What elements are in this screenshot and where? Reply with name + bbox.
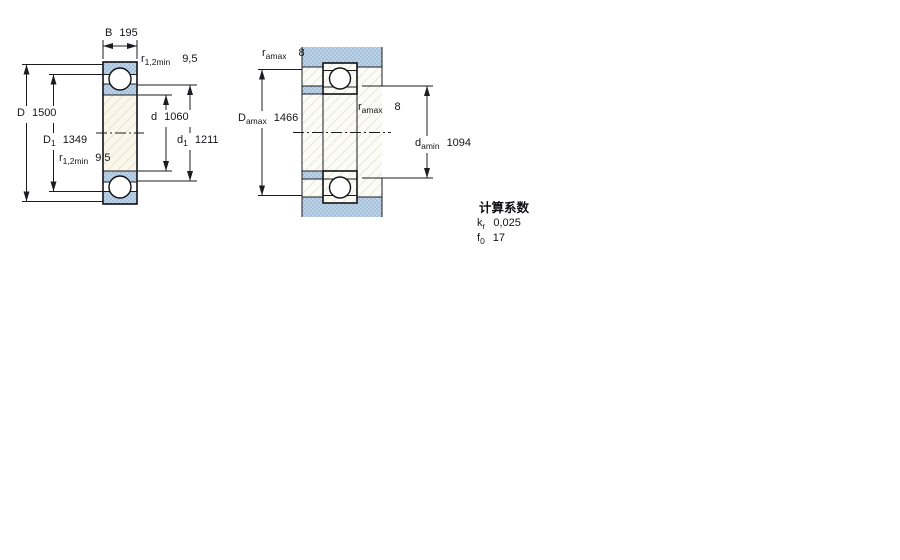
dim-subscript: 1,2min bbox=[145, 57, 171, 67]
dim-label-B: B195 bbox=[105, 26, 138, 43]
factor-value: 0,025 bbox=[493, 217, 521, 229]
dim-label-ramax-top: ramax8 bbox=[262, 46, 305, 63]
ball-bottom bbox=[330, 177, 351, 198]
calc-factor-f0: f017 bbox=[477, 232, 505, 246]
dim-label-d: d1060 bbox=[149, 110, 191, 127]
calc-factor-kr: kr0,025 bbox=[477, 217, 521, 231]
dim-value: 195 bbox=[119, 27, 137, 39]
shaft-shoulder-bottom bbox=[302, 171, 323, 179]
dim-value: 8 bbox=[298, 47, 304, 59]
dim-value: 1060 bbox=[164, 111, 188, 123]
mounted-bearing-top bbox=[323, 63, 357, 94]
dim-value: 9,5 bbox=[95, 152, 110, 164]
dim-subscript: amax bbox=[266, 51, 287, 61]
dim-symbol: B bbox=[105, 27, 112, 39]
dim-symbol: D bbox=[238, 112, 246, 124]
ball-top bbox=[330, 68, 351, 89]
dim-value: 1500 bbox=[32, 107, 56, 119]
dim-symbol: D bbox=[43, 134, 51, 146]
dim-label-ramax-right: ramax8 bbox=[358, 100, 401, 117]
calc-factors-title: 计算系数 bbox=[479, 197, 529, 216]
dim-label-r12min-bottom: r1,2min9,5 bbox=[59, 151, 110, 168]
dim-value: 1211 bbox=[195, 134, 219, 146]
dim-label-d1: d11211 bbox=[175, 133, 221, 150]
dim-value: 1466 bbox=[274, 112, 298, 124]
dim-symbol: d bbox=[151, 111, 157, 123]
factor-value: 17 bbox=[493, 232, 505, 244]
dim-label-Damax: Damax1466 bbox=[236, 111, 300, 128]
dim-label-D: D1500 bbox=[15, 106, 58, 123]
dim-label-D1: D11349 bbox=[41, 133, 89, 150]
technical-drawing-page: B195 r1,2min9,5 D1500 D11349 r1,2min9,5 … bbox=[0, 0, 900, 560]
dim-subscript: 1 bbox=[183, 138, 188, 148]
dim-value: 9,5 bbox=[182, 53, 197, 65]
shaft-shoulder-top bbox=[302, 86, 323, 94]
mounted-bearing-bottom bbox=[323, 171, 357, 203]
factor-subscript: 0 bbox=[480, 236, 485, 246]
dim-subscript: amax bbox=[246, 116, 267, 126]
mounting-figure bbox=[258, 47, 433, 217]
technical-drawing-canvas bbox=[0, 0, 900, 560]
dim-symbol: D bbox=[17, 107, 25, 119]
dim-value: 1094 bbox=[447, 137, 471, 149]
dim-subscript: 1 bbox=[51, 138, 56, 148]
ball-bottom bbox=[109, 176, 131, 198]
dim-value: 8 bbox=[394, 101, 400, 113]
dim-subscript: 1,2min bbox=[63, 156, 89, 166]
dim-subscript: amin bbox=[421, 141, 439, 151]
factor-subscript: r bbox=[483, 221, 486, 231]
dim-label-r12min-top: r1,2min9,5 bbox=[141, 52, 197, 69]
dim-value: 1349 bbox=[63, 134, 87, 146]
dim-label-damin: damin1094 bbox=[413, 136, 473, 153]
dim-subscript: amax bbox=[362, 105, 383, 115]
ball-top bbox=[109, 68, 131, 90]
